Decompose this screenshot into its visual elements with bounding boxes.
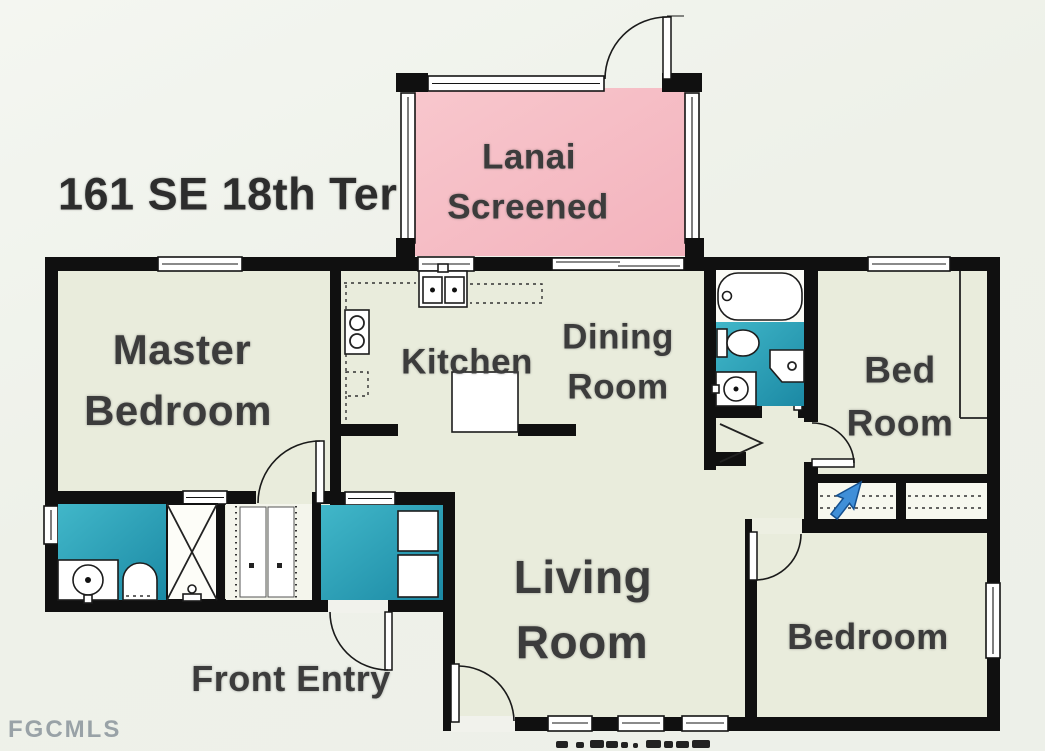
lanai-door <box>605 16 684 79</box>
bedroom-window <box>986 583 1000 658</box>
room-label-front-entry: Front Entry <box>191 661 391 697</box>
stove <box>345 310 369 354</box>
master-bath <box>58 504 217 603</box>
room-label-living-line1: Living <box>514 554 652 600</box>
floor-plan-page: 161 SE 18th Ter Lanai Screened Master Be… <box>0 0 1045 751</box>
master-bedroom-window <box>158 257 242 271</box>
room-label-master-line2: Bedroom <box>84 390 272 432</box>
hall-toilet <box>717 329 759 357</box>
bed-room-window <box>868 257 950 271</box>
room-label-lanai-line1: Lanai <box>482 140 576 175</box>
front-door-opening <box>328 598 388 613</box>
living-room-windows <box>548 716 728 731</box>
washer <box>398 511 438 551</box>
living-door-opening <box>451 716 515 732</box>
room-label-dining-line2: Room <box>567 370 668 405</box>
room-label-master-line1: Master <box>113 329 251 371</box>
master-bath-pocket-door <box>183 491 227 504</box>
room-label-living-line2: Room <box>516 619 648 665</box>
hall-bath-vanity <box>712 372 756 406</box>
bedroom-door-opening <box>752 518 802 534</box>
room-label-bedroom-br: Bedroom <box>787 619 949 655</box>
room-label-dining-line1: Dining <box>562 320 674 355</box>
kitchen-sink <box>419 264 467 307</box>
room-label-lanai-line2: Screened <box>447 190 609 225</box>
master-shower <box>167 504 217 601</box>
laundry-room <box>321 505 443 600</box>
room-label-kitchen: Kitchen <box>401 345 533 380</box>
master-bath-vanity <box>58 560 118 603</box>
cropped-text-fragment <box>556 740 710 748</box>
dryer <box>398 555 438 597</box>
mls-watermark: FGCMLS <box>8 718 121 742</box>
laundry-cased-opening <box>345 492 395 505</box>
master-bath-window <box>44 506 58 544</box>
room-label-bedroom-tr-line2: Room <box>847 405 954 442</box>
page-title: 161 SE 18th Ter <box>58 172 397 217</box>
closet-door <box>268 507 294 597</box>
closet-door <box>240 507 266 597</box>
room-label-bedroom-tr-line1: Bed <box>864 352 935 389</box>
sliding-glass-door <box>552 258 684 270</box>
master-toilet <box>123 563 157 600</box>
master-closets <box>226 504 312 600</box>
